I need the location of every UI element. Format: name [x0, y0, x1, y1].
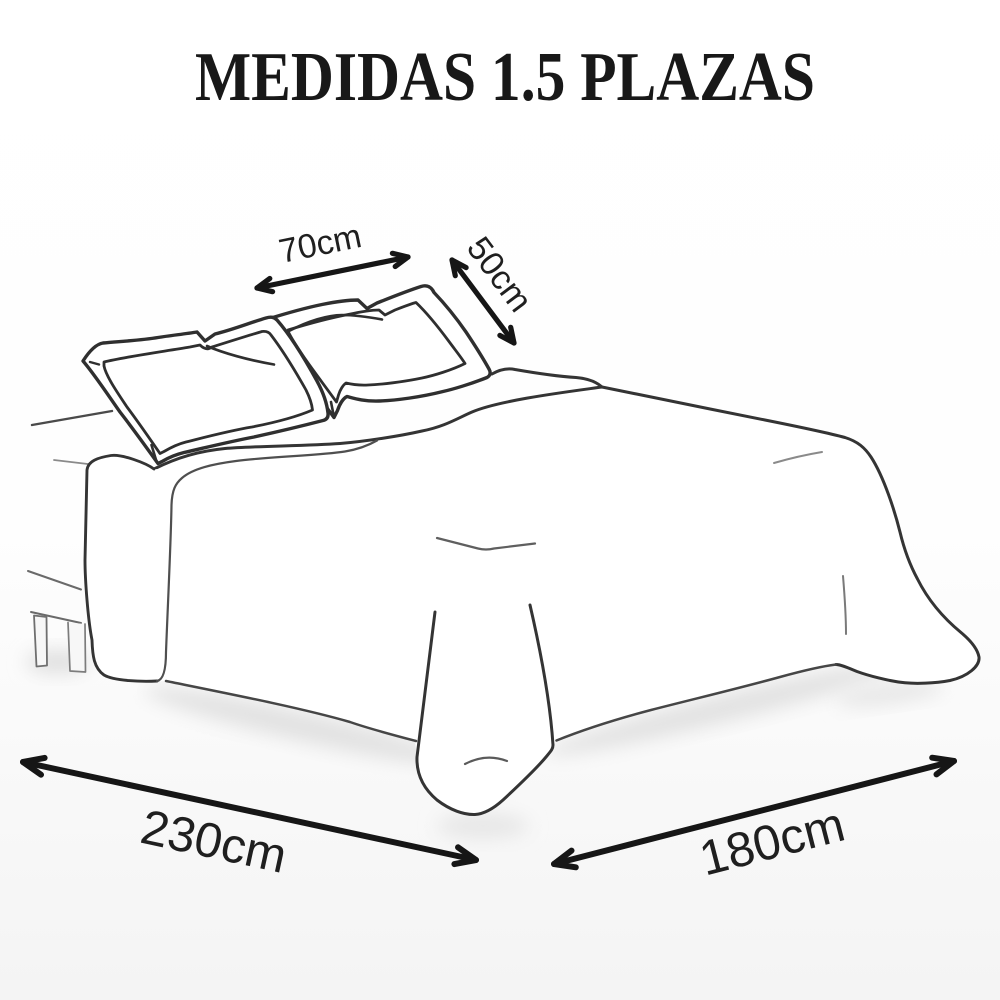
svg-text:70cm: 70cm [276, 217, 365, 271]
svg-text:50cm: 50cm [459, 230, 539, 319]
svg-text:MEDIDAS 1.5 PLAZAS: MEDIDAS 1.5 PLAZAS [195, 39, 815, 116]
